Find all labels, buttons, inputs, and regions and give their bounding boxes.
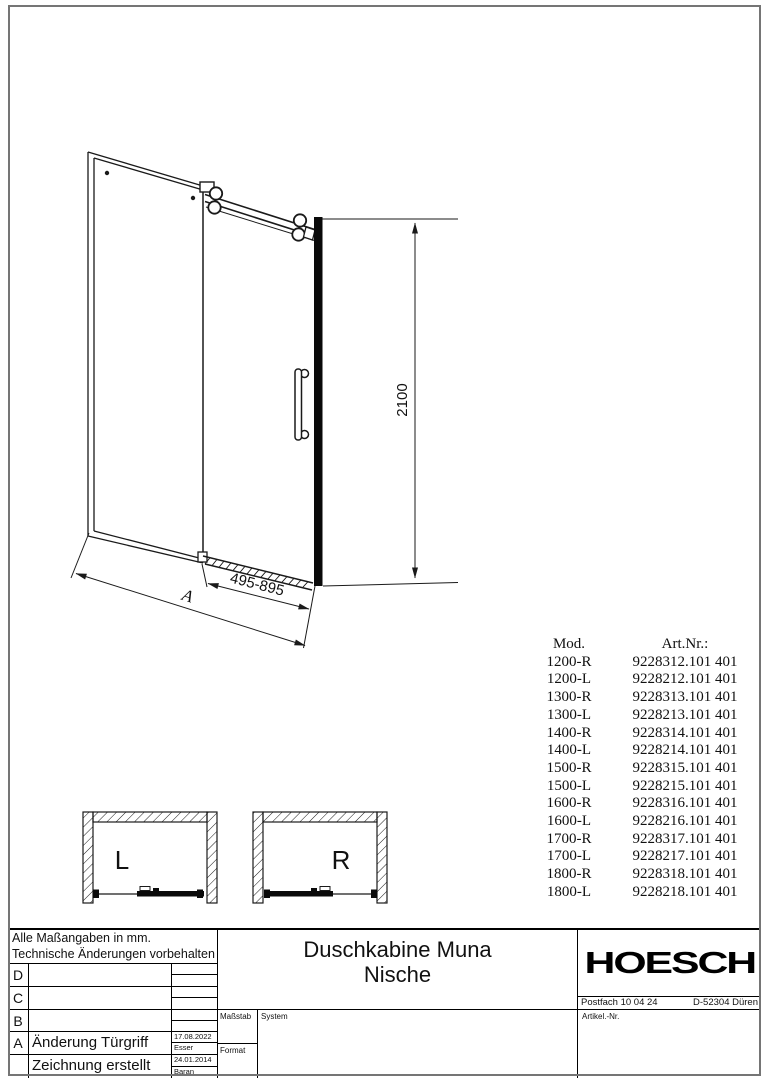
drawing-sheet: 2100 495-895 A L (0, 0, 768, 1080)
sheet-frame (8, 5, 761, 1076)
